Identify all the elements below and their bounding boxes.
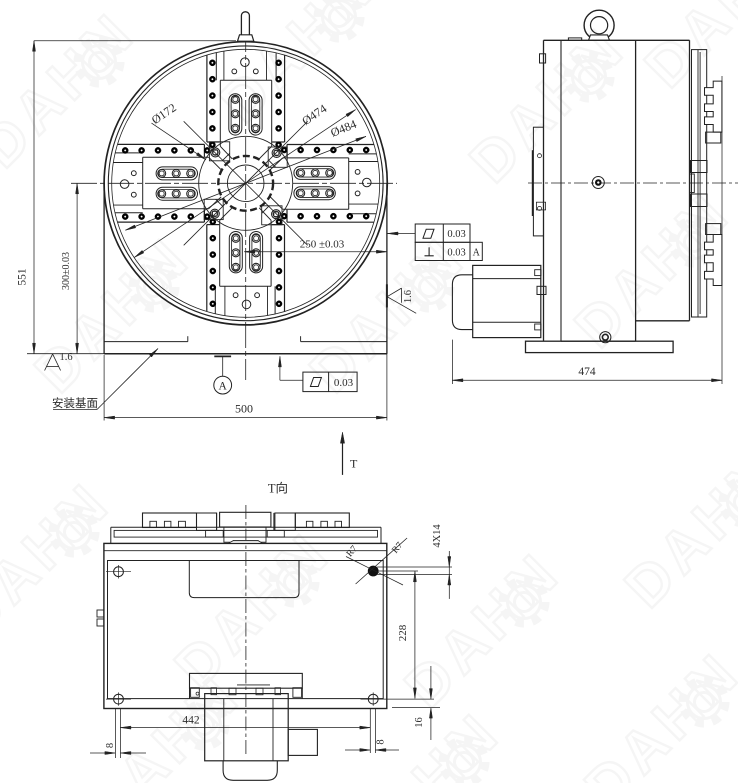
- svg-text:1.6: 1.6: [403, 290, 414, 303]
- svg-text:250 ±0.03: 250 ±0.03: [300, 239, 345, 251]
- svg-text:8: 8: [105, 743, 116, 748]
- svg-text:4X14: 4X14: [432, 524, 443, 548]
- svg-text:300±0.03: 300±0.03: [61, 252, 72, 290]
- svg-text:1.6: 1.6: [59, 352, 72, 363]
- svg-text:551: 551: [17, 268, 29, 286]
- svg-text:0.03: 0.03: [334, 377, 354, 389]
- svg-text:A: A: [473, 248, 481, 259]
- svg-text:8: 8: [376, 739, 387, 744]
- svg-text:安装基面: 安装基面: [52, 396, 98, 410]
- svg-text:474: 474: [578, 366, 596, 378]
- svg-text:500: 500: [235, 401, 253, 415]
- svg-text:228: 228: [397, 624, 409, 641]
- svg-text:16: 16: [414, 717, 425, 728]
- svg-text:0.03: 0.03: [447, 248, 465, 259]
- svg-text:A: A: [219, 380, 228, 392]
- svg-text:T向: T向: [268, 481, 288, 496]
- svg-text:T: T: [350, 457, 358, 471]
- svg-text:0.03: 0.03: [447, 229, 465, 240]
- svg-text:442: 442: [182, 715, 200, 727]
